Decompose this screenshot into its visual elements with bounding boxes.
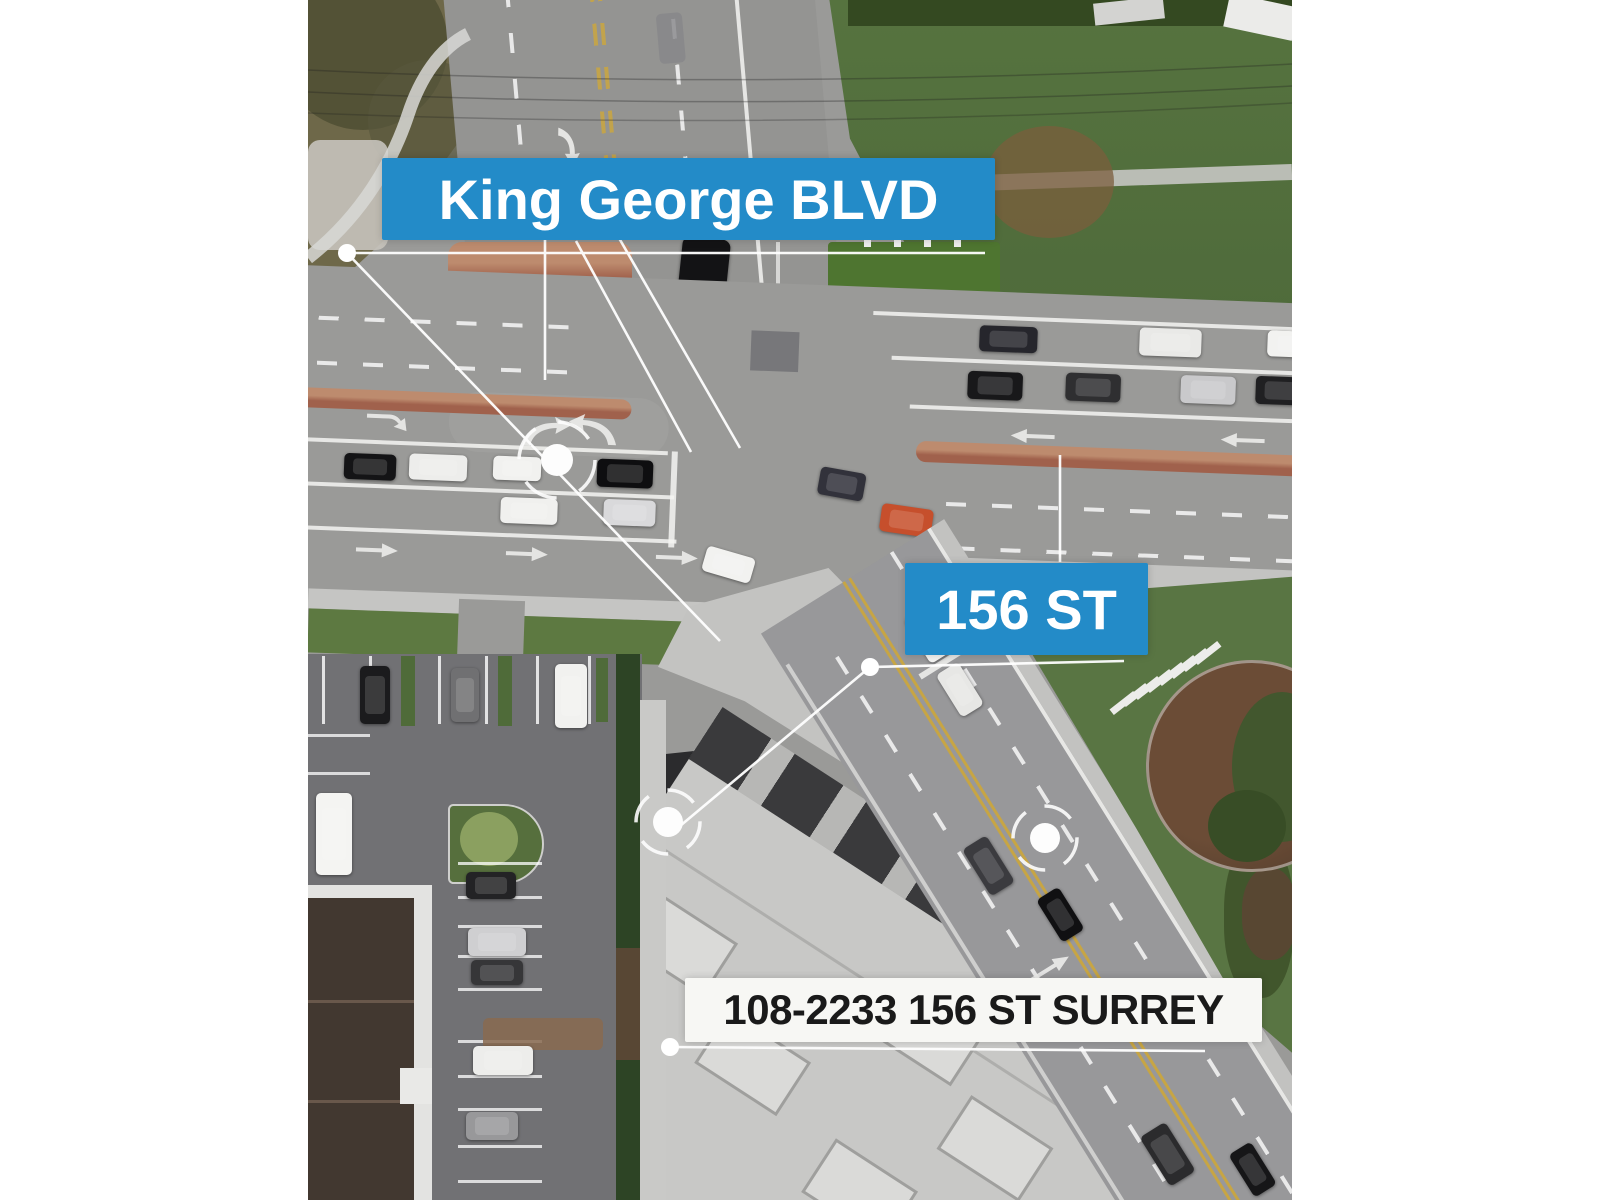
street-label-text: 156 ST [936,577,1117,642]
leader-line [670,1047,1205,1051]
leader-dot [861,658,879,676]
location-marker [1030,823,1060,853]
location-marker [653,807,683,837]
power-line [308,103,1292,121]
address-label: 108-2233 156 ST SURREY [685,978,1262,1042]
leader-line [576,241,691,452]
leader-line [347,253,720,641]
leader-dot [338,244,356,262]
location-marker [541,444,573,476]
power-line [308,86,1292,102]
leader-line [870,661,1124,667]
aerial-photo: King George BLVD 156 ST 108-2233 156 ST … [308,0,1292,1200]
street-label-king-george-blvd: King George BLVD [382,158,995,240]
leader-line [680,667,870,826]
leader-line [619,238,740,448]
power-line [308,64,1292,80]
video-frame: King George BLVD 156 ST 108-2233 156 ST … [0,0,1600,1200]
street-label-text: King George BLVD [439,167,939,232]
address-label-text: 108-2233 156 ST SURREY [723,986,1223,1034]
street-label-156-st: 156 ST [905,563,1148,655]
leader-dot [661,1038,679,1056]
